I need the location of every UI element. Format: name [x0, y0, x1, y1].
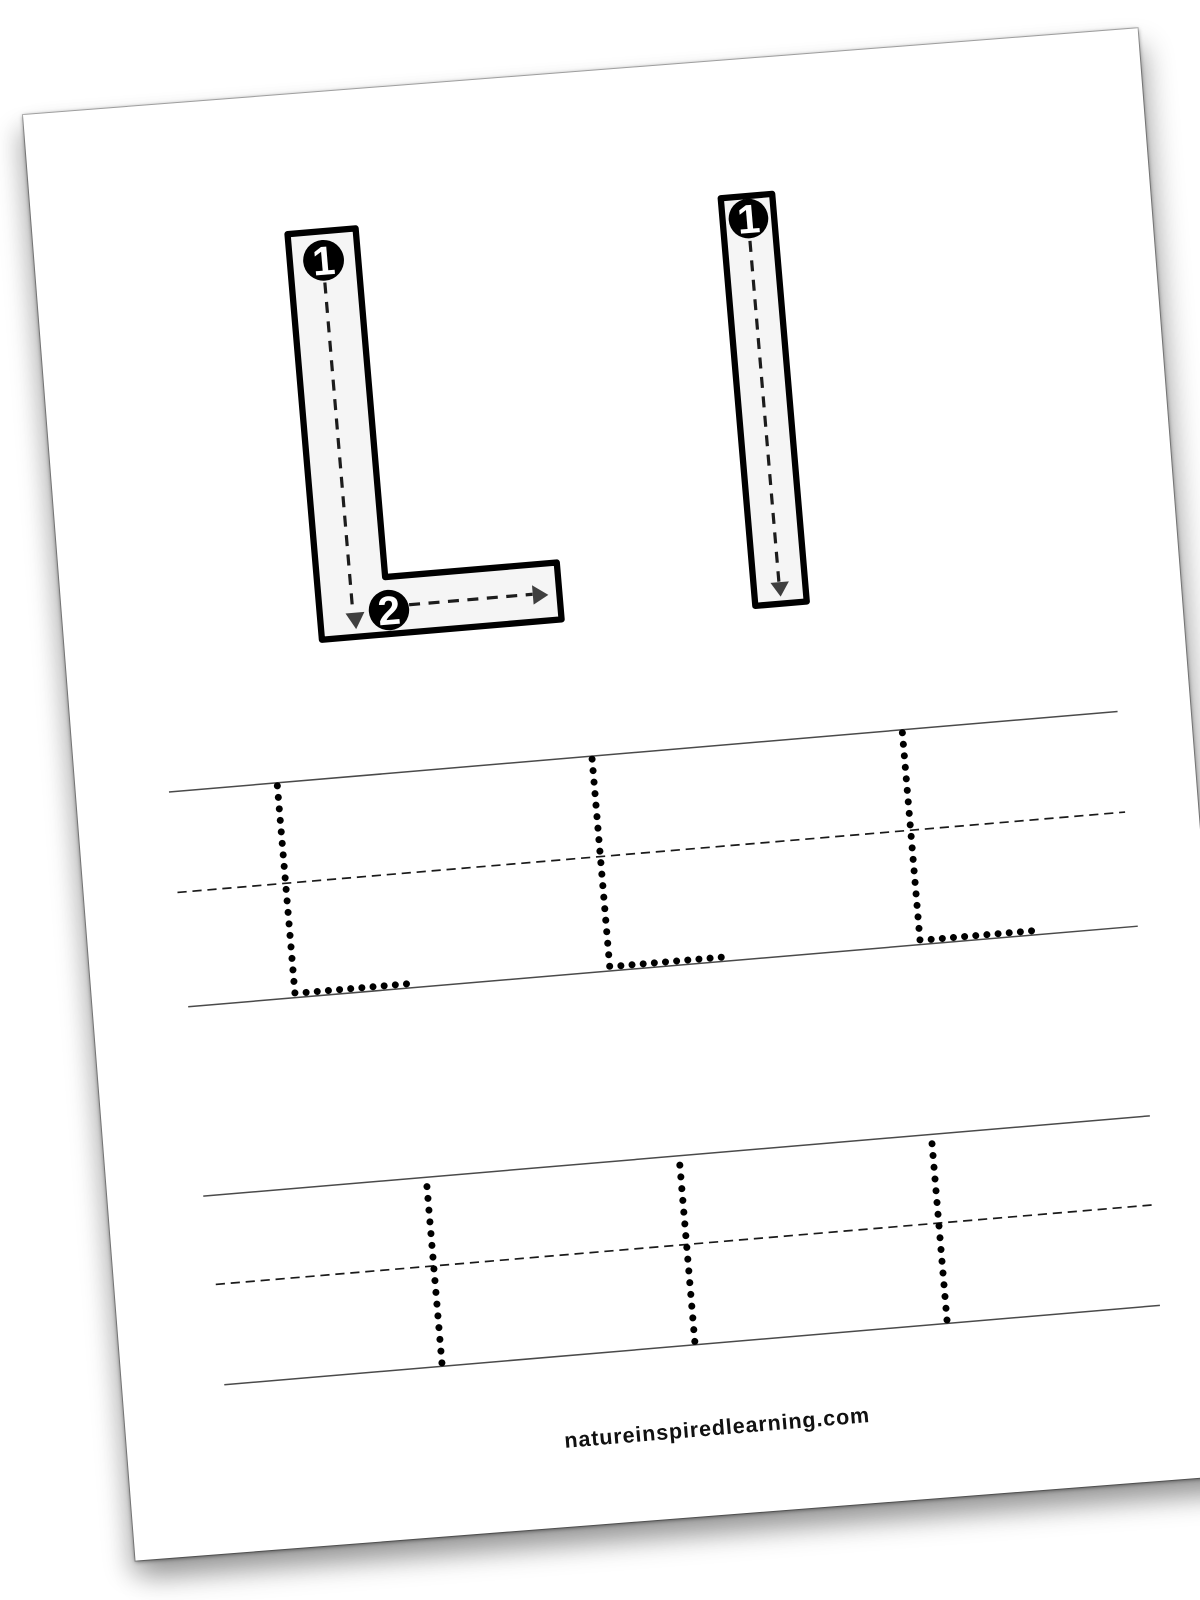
- svg-text:1: 1: [735, 195, 761, 243]
- svg-text:2: 2: [376, 587, 402, 635]
- svg-text:1: 1: [310, 237, 336, 285]
- svg-text:natureinspiredlearning.com: natureinspiredlearning.com: [563, 1403, 870, 1453]
